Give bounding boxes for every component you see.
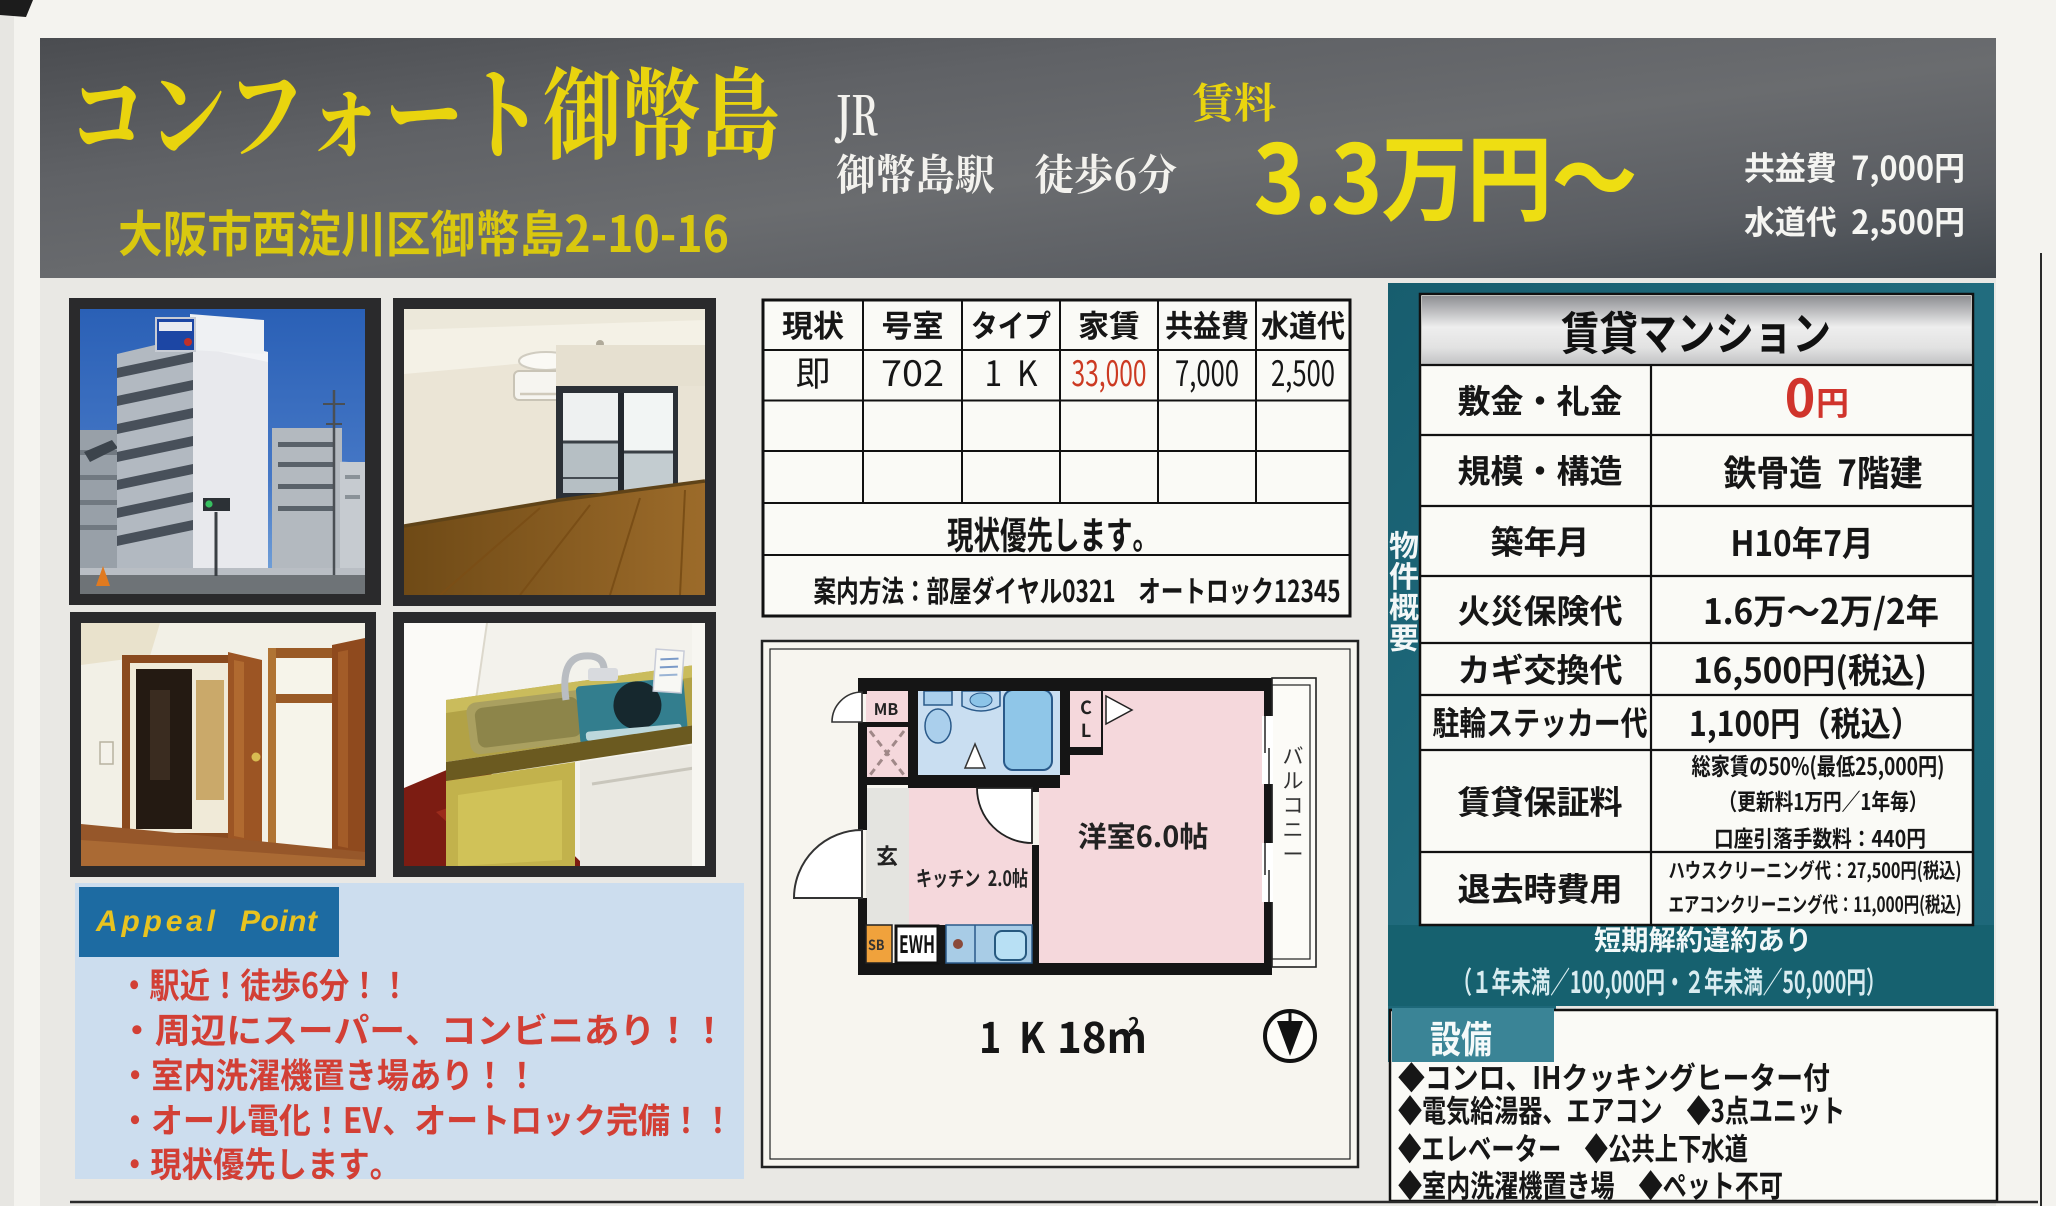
svg-text:Appeal: Appeal [95, 905, 216, 938]
svg-text:Point: Point [240, 905, 319, 938]
